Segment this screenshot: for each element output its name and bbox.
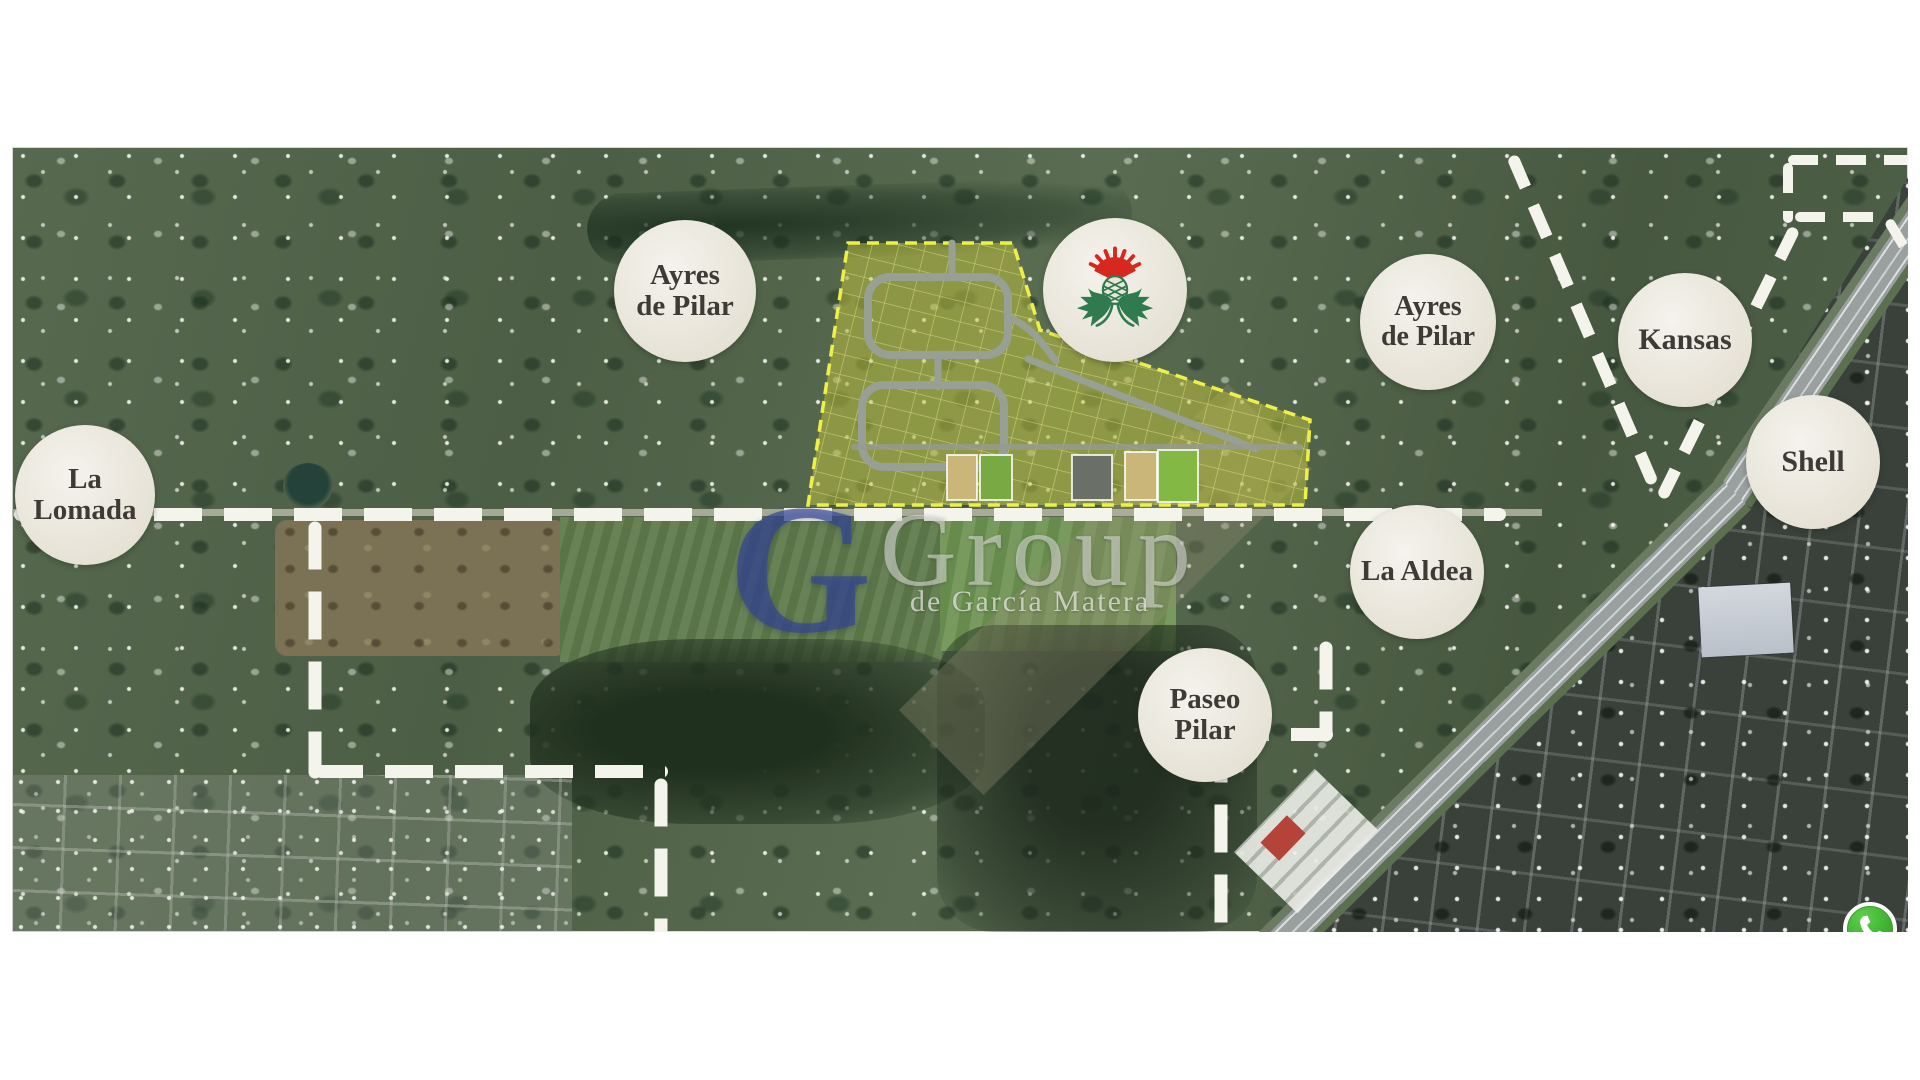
highlighted-parcel-plan	[12, 147, 1908, 932]
label-circle-ayres-de-pilar-east: Ayres de Pilar	[1360, 254, 1496, 390]
label-text: de Pilar	[1381, 322, 1475, 352]
boundary-dash-line	[309, 522, 322, 779]
label-circle-kansas: Kansas	[1618, 273, 1752, 407]
label-text: Pilar	[1174, 715, 1235, 746]
label-circle-ayres-de-pilar-west: Ayres de Pilar	[614, 220, 756, 362]
label-text: Ayres	[650, 260, 720, 291]
boundary-dash-line	[1788, 155, 1908, 165]
thistle-logo-icon	[1063, 238, 1167, 342]
label-text: Shell	[1781, 446, 1844, 478]
listing-map-page: { "map_annotations": { "labels": { "ayre…	[0, 0, 1920, 1080]
boundary-dash-line	[1795, 212, 1890, 222]
boundary-dash-line	[655, 779, 668, 933]
boundary-dash-line	[315, 765, 668, 778]
label-circle-la-lomada: La Lomada	[15, 425, 155, 565]
label-circle-la-aldea: La Aldea	[1350, 505, 1484, 639]
sports-facility	[947, 450, 1198, 502]
whatsapp-button[interactable]	[1840, 900, 1900, 932]
label-text: de Pilar	[636, 291, 733, 322]
label-text: Paseo	[1170, 684, 1241, 715]
label-circle-shell: Shell	[1746, 395, 1880, 529]
boundary-dash-line	[14, 508, 1506, 521]
whatsapp-icon	[1840, 900, 1900, 932]
label-text: La Aldea	[1361, 556, 1473, 587]
label-circle-paseo-pilar: Paseo Pilar	[1138, 648, 1272, 782]
boundary-dash-line	[1783, 163, 1793, 223]
label-text: La	[68, 464, 102, 495]
label-text: Lomada	[33, 495, 136, 526]
logo-circle	[1043, 218, 1187, 362]
boundary-dash-line	[1320, 642, 1333, 742]
label-text: Kansas	[1638, 324, 1731, 356]
satellite-map: G Group de García Matera Ayres de Pilar	[12, 147, 1908, 932]
label-text: Ayres	[1394, 292, 1461, 322]
